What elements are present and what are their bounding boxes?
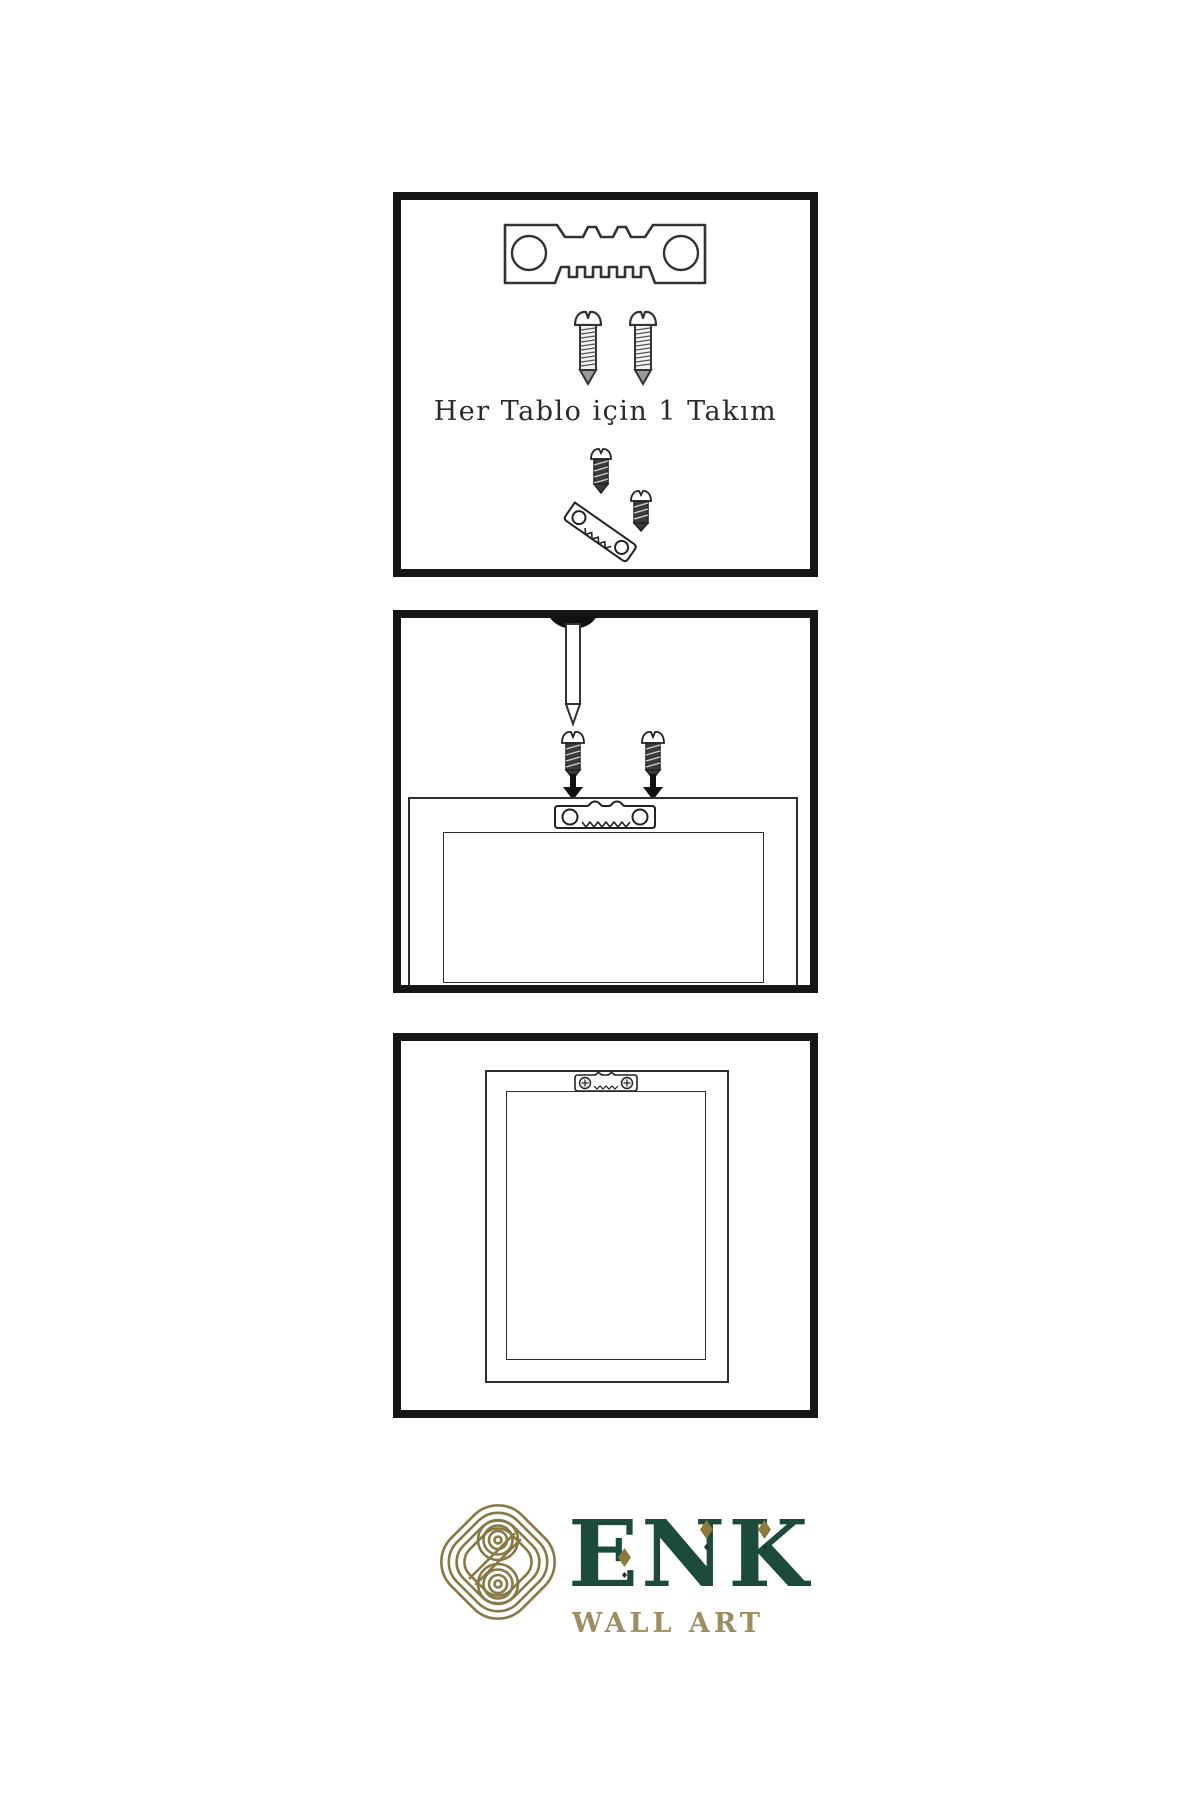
mounted-sawtooth-hanger-icon [574, 1071, 638, 1093]
sawtooth-hanger-icon [552, 800, 658, 830]
instruction-sheet: Her Tablo için 1 Takım [0, 0, 1200, 1800]
wall-nail-icon [549, 616, 597, 728]
brand-subtitle: WALL ART [572, 1608, 764, 1639]
frame-back-inner-outline [506, 1091, 706, 1360]
sawtooth-hanger-icon [497, 222, 713, 286]
panel-hardware-kit: Her Tablo için 1 Takım [393, 192, 818, 577]
screw-icon [572, 310, 604, 388]
brand-lockup: ENK WALL ART [432, 1494, 792, 1634]
brand-text: ENK WALL ART [568, 1508, 788, 1628]
panel-mounted-frame [393, 1033, 818, 1418]
kit-caption: Her Tablo için 1 Takım [401, 396, 810, 427]
panel-installation [393, 610, 818, 993]
interlaced-knot-logo [432, 1494, 564, 1630]
frame-back-inner-outline [443, 832, 764, 983]
screw-icon [627, 310, 659, 388]
brand-name: ENK [568, 1508, 811, 1600]
angled-sawtooth-hanger-icon [561, 448, 671, 563]
